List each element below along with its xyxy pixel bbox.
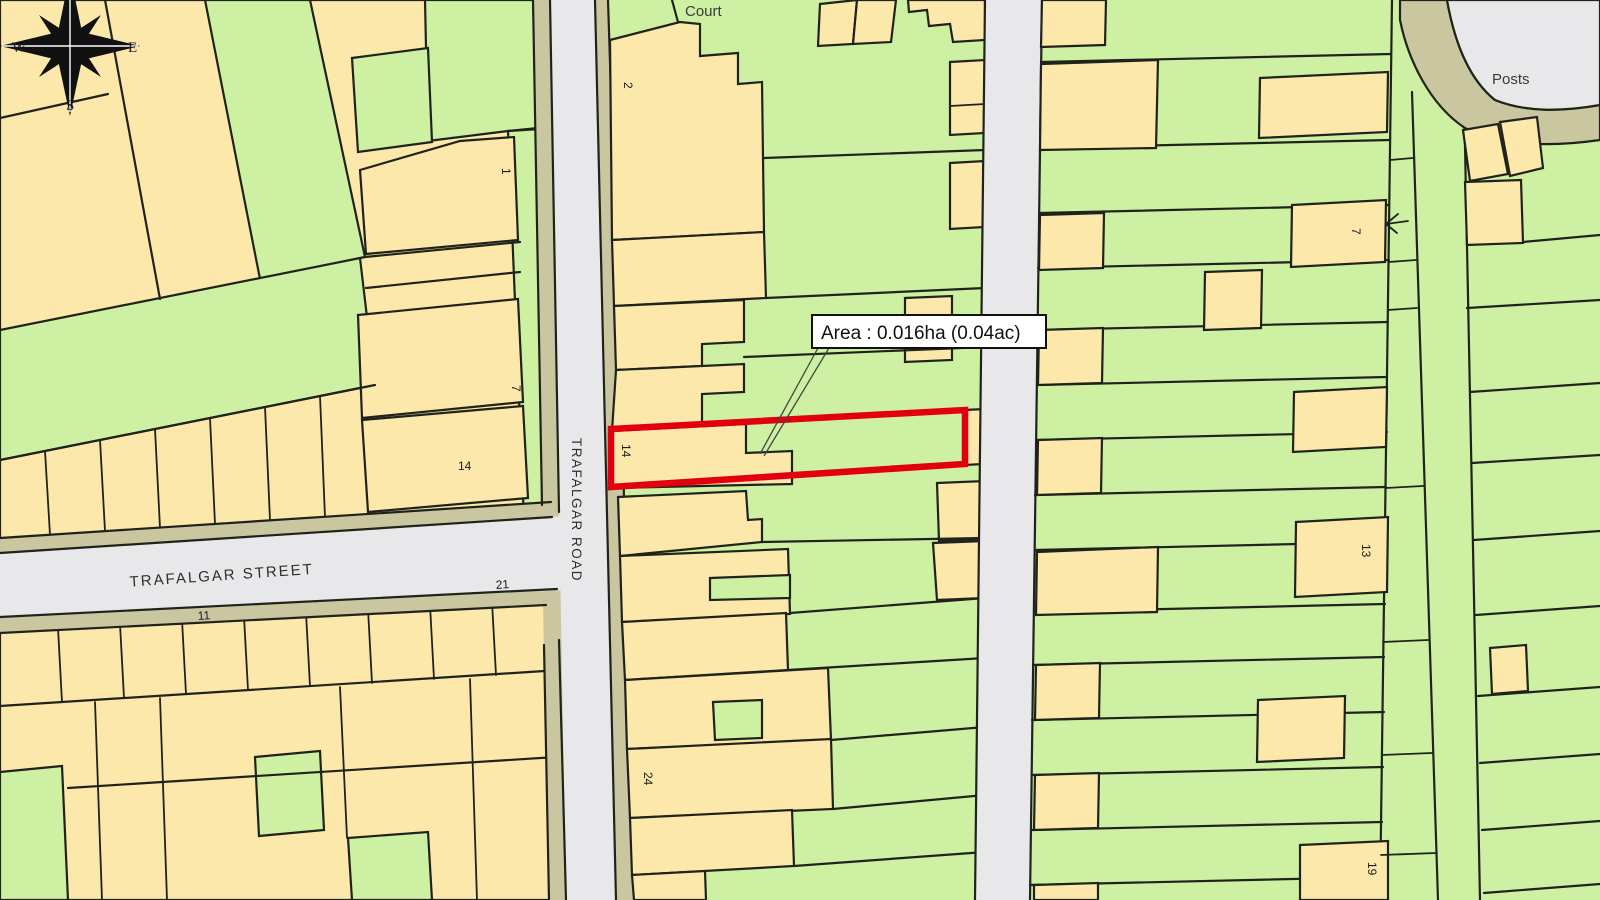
parcel-block-southwest: [0, 599, 560, 900]
plot-number-21: 21: [495, 577, 510, 592]
plot-number-7-left: 7: [509, 385, 523, 392]
posts-label: Posts: [1492, 71, 1530, 88]
plot-number-2: 2: [621, 82, 635, 89]
area-annotation-text: Area : 0.016ha (0.04ac): [821, 323, 1021, 344]
plot-number-14-left: 14: [458, 459, 472, 473]
plot-number-24: 24: [641, 772, 655, 786]
plot-number-14-highlight: 14: [619, 444, 633, 458]
parcel-block-northwest: [0, 0, 556, 542]
court-label: Court: [685, 3, 723, 20]
road-name-label: TRAFALGAR ROAD: [569, 438, 584, 582]
plot-number-13: 13: [1359, 544, 1373, 558]
compass-south-label: S: [66, 98, 74, 114]
plot-number-7-right: 7: [1349, 228, 1363, 235]
compass-west-label: W: [12, 40, 27, 56]
map-canvas[interactable]: W E S Court Posts TRAFALGAR STREET TRAFA…: [0, 0, 1600, 900]
map-viewport: W E S Court Posts TRAFALGAR STREET TRAFA…: [0, 0, 1600, 900]
plot-number-19: 19: [1365, 862, 1379, 876]
plot-number-1: 1: [499, 168, 513, 175]
compass-east-label: E: [128, 40, 137, 56]
plot-number-11: 11: [197, 608, 211, 623]
